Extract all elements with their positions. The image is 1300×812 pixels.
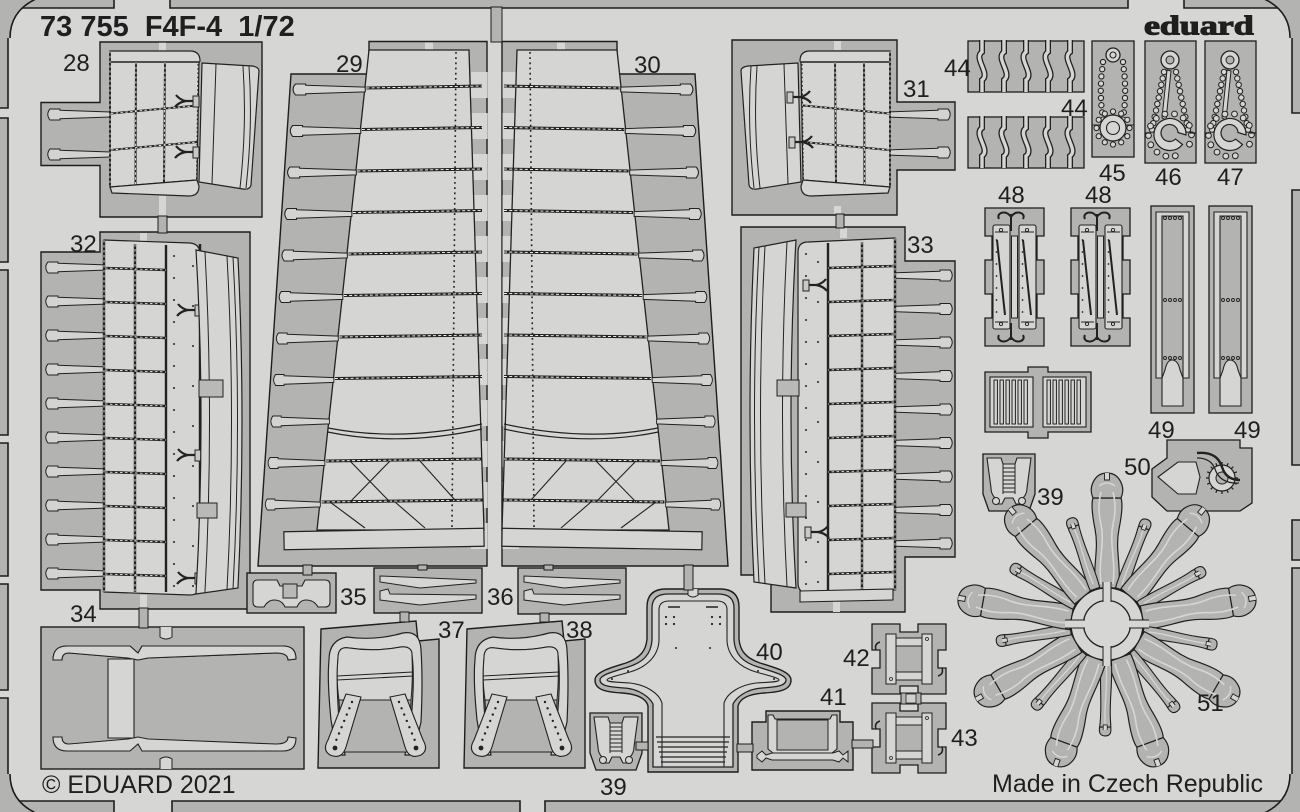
svg-text:29: 29 [336, 51, 363, 78]
svg-text:36: 36 [487, 584, 514, 611]
svg-text:44: 44 [1061, 95, 1088, 122]
svg-text:51: 51 [1197, 690, 1224, 717]
svg-text:38: 38 [566, 617, 593, 644]
svg-text:48: 48 [1085, 182, 1112, 209]
svg-text:31: 31 [903, 76, 930, 103]
svg-text:32: 32 [70, 231, 97, 258]
svg-text:eduard: eduard [1144, 11, 1254, 41]
svg-text:41: 41 [820, 684, 847, 711]
svg-text:46: 46 [1155, 164, 1182, 191]
svg-text:37: 37 [438, 617, 465, 644]
svg-text:28: 28 [63, 50, 90, 77]
svg-text:39: 39 [1037, 484, 1064, 511]
svg-text:35: 35 [340, 584, 367, 611]
svg-text:48: 48 [998, 182, 1025, 209]
svg-text:© EDUARD 2021: © EDUARD 2021 [42, 771, 236, 799]
svg-text:34: 34 [70, 601, 97, 628]
svg-text:Made in Czech Republic: Made in Czech Republic [992, 770, 1263, 798]
svg-text:50: 50 [1124, 454, 1151, 481]
svg-text:47: 47 [1217, 164, 1244, 191]
svg-text:40: 40 [756, 639, 783, 666]
svg-text:44: 44 [944, 55, 971, 82]
svg-text:73 755 F4F-4 1/72: 73 755 F4F-4 1/72 [40, 11, 295, 43]
svg-text:30: 30 [634, 52, 661, 79]
svg-text:39: 39 [600, 774, 627, 801]
svg-text:33: 33 [907, 232, 934, 259]
svg-text:43: 43 [951, 725, 978, 752]
svg-text:42: 42 [843, 645, 870, 672]
